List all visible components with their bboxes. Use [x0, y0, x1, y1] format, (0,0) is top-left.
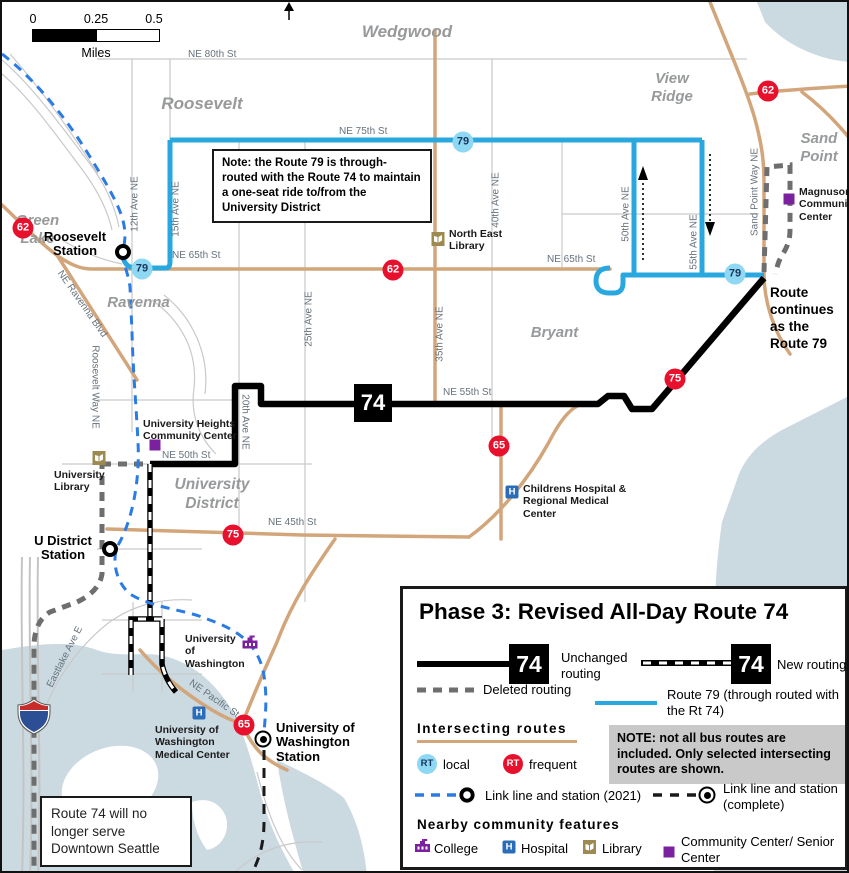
hospital-icon: H [503, 841, 516, 854]
new-routing-sample [641, 657, 731, 669]
uw-station-label: University of Washington Station [276, 721, 371, 764]
scale-tick-05: 0.5 [145, 12, 162, 26]
street-label-ne-65th-east: NE 65th St [547, 254, 595, 266]
hospital-icon: H [506, 486, 519, 499]
local-route-badge: RT [417, 754, 437, 774]
frequent-route-badge: RT [503, 754, 523, 774]
deleted-routing-label: Deleted routing [483, 682, 571, 698]
route-79-sample [595, 701, 657, 705]
route-74-badge: 74 [731, 644, 771, 684]
neighborhood-sand-point: Sand Point [790, 130, 848, 166]
college-label: College [434, 841, 478, 857]
route-75-badge: 75 [223, 525, 244, 546]
uw-campus-label: University of Washington [185, 633, 247, 670]
transit-map: 0 0.25 0.5 Miles Wedgwood View Ridge San… [0, 0, 849, 873]
library-icon [583, 840, 596, 854]
link-complete-sample [653, 790, 699, 800]
uw-station-marker [255, 731, 272, 748]
street-label-50th-ave: 50th Ave NE [621, 186, 632, 241]
route-79-label: Route 79 (through routed with the Rt 74) [667, 687, 845, 718]
link-complete-station-marker [699, 787, 716, 804]
street-label-ne-55th: NE 55th St [443, 387, 491, 399]
library-icon [432, 232, 445, 246]
library-icon [93, 451, 106, 465]
magnuson-label: Magnuson Community Center [799, 186, 849, 223]
neighborhood-ravenna: Ravenna [96, 294, 181, 312]
neighborhood-wedgwood: Wedgwood [347, 22, 467, 42]
route-75-badge: 75 [665, 369, 686, 390]
childrens-hospital-label: Childrens Hospital & Regional Medical Ce… [523, 483, 633, 520]
intersecting-routes-rule [417, 740, 577, 743]
link-2021-sample [415, 790, 463, 800]
scale-bar: 0 0.25 0.5 Miles [2, 2, 182, 64]
route-62-badge: 62 [13, 218, 34, 239]
frequent-label: frequent [529, 757, 577, 773]
street-label-ne-65th-west: NE 65th St [172, 250, 220, 262]
legend-panel: Phase 3: Revised All-Day Route 74 74 Unc… [400, 586, 848, 870]
street-label-ne-75th: NE 75th St [339, 126, 387, 138]
intersecting-routes-heading: Intersecting routes [417, 721, 567, 736]
legend-title: Phase 3: Revised All-Day Route 74 [419, 599, 788, 625]
unchanged-routing-sample [417, 661, 511, 667]
link-complete-label: Link line and station (complete) [723, 781, 848, 812]
route-65-badge: 65 [489, 436, 510, 457]
local-label: local [443, 757, 470, 773]
scale-tick-025: 0.25 [84, 12, 108, 26]
street-label-40th-ave: 40th Ave NE [491, 172, 502, 227]
uw-medical-label: University of Washington Medical Center [155, 724, 240, 761]
deleted-routing-sample [417, 685, 477, 695]
street-label-ne-45th: NE 45th St [268, 517, 316, 529]
scale-bar-track [32, 29, 160, 42]
street-label-35th-ave: 35th Ave NE [435, 306, 446, 361]
college-icon [415, 839, 430, 852]
street-label-15th-ave: 15th Ave NE [171, 181, 182, 236]
u-heights-label: University Heights Community Center [143, 418, 251, 443]
route-continues-label: Route continues as the Route 79 [770, 285, 846, 353]
neighborhood-view-ridge: View Ridge [642, 70, 702, 106]
community-center-label: Community Center/ Senior Center [681, 834, 841, 865]
hospital-icon: H [193, 707, 206, 720]
unchanged-routing-label: Unchanged routing [561, 650, 646, 681]
street-label-sand-point-way: Sand Point Way NE [750, 148, 761, 236]
library-label: Library [602, 841, 642, 857]
street-label-ne-80th: NE 80th St [188, 49, 236, 61]
route-79-badge: 79 [453, 132, 474, 153]
route-79-badge: 79 [725, 264, 746, 285]
route-62-badge: 62 [758, 81, 779, 102]
neighborhood-bryant: Bryant [522, 324, 587, 342]
street-label-55th-ave: 55th Ave NE [689, 214, 700, 269]
scale-tick-0: 0 [30, 12, 37, 26]
route-74-badge: 74 [509, 644, 549, 684]
new-routing-label: New routing [777, 657, 846, 673]
link-2021-label: Link line and station (2021) [485, 788, 641, 804]
hospital-label: Hospital [521, 841, 568, 857]
street-label-ne-50th: NE 50th St [162, 450, 210, 462]
street-label-roosevelt-way: Roosevelt Way NE [90, 345, 101, 429]
community-features-heading: Nearby community features [417, 817, 620, 832]
u-library-label: University Library [54, 469, 116, 494]
north-arrow-icon [284, 2, 294, 20]
u-district-station-label: U District Station [28, 534, 98, 563]
neighborhood-roosevelt: Roosevelt [147, 94, 257, 114]
through-route-note: Note: the Route 79 is through-routed wit… [212, 149, 432, 223]
route-74-badge: 74 [354, 384, 392, 422]
roosevelt-station-marker [115, 244, 131, 260]
u-district-station-marker [102, 541, 118, 557]
community-center-icon [664, 847, 675, 858]
roosevelt-station-label: Roosevelt Station [36, 230, 114, 259]
ne-library-label: North East Library [449, 228, 507, 253]
downtown-note: Route 74 will no longer serve Downtown S… [40, 796, 192, 867]
neighborhood-university-district: University District [167, 476, 257, 513]
community-center-icon [784, 194, 795, 205]
street-label-25th-ave: 25th Ave NE [304, 291, 315, 346]
route-79-badge: 79 [132, 259, 153, 280]
link-2021-station-marker [459, 787, 474, 802]
scale-unit: Miles [81, 46, 110, 60]
scale-bar-filled [33, 30, 97, 41]
route-62-badge: 62 [383, 260, 404, 281]
legend-note: NOTE: not all bus routes are included. O… [609, 725, 845, 784]
street-label-12th-ave: 12th Ave NE [130, 176, 141, 231]
